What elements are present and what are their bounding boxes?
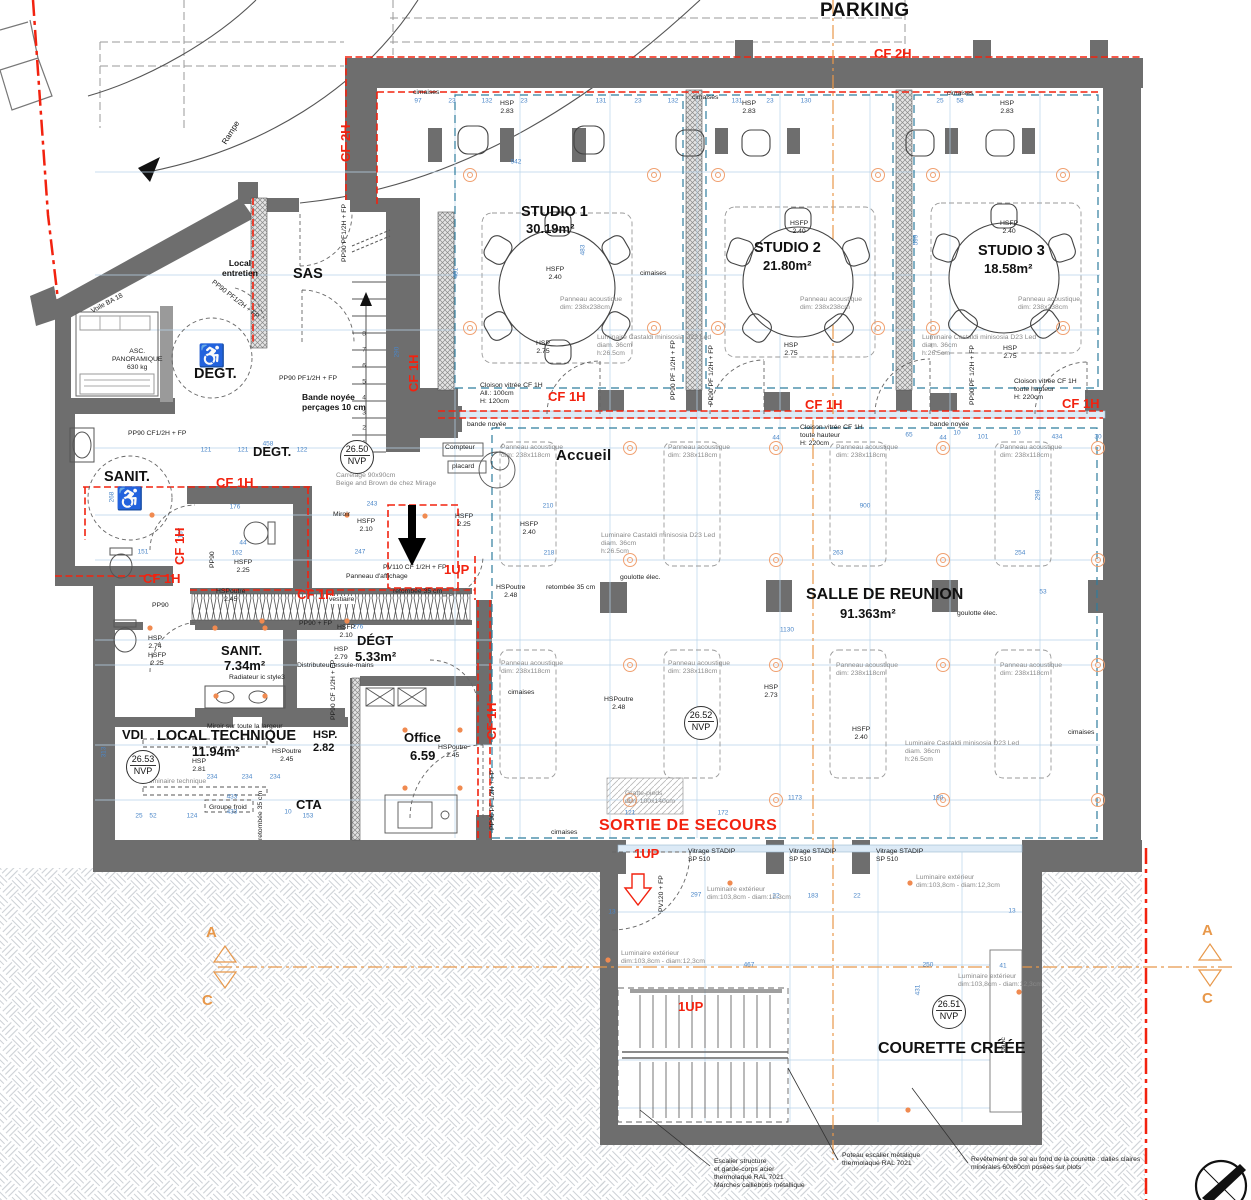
zone-label-parking: PARKING: [820, 0, 910, 22]
height-label: HSP 2.74: [148, 635, 162, 651]
exterior-light-label: Luminaire extérieur dim:103,8cm - diam:1…: [707, 886, 791, 902]
beam-label: retombée 35 cm: [546, 584, 595, 592]
height-label-hsp282: HSP. 2.82: [313, 729, 337, 755]
dimension-label: 254: [1015, 550, 1026, 557]
beam-label: HSPoutre 2.45: [272, 748, 301, 764]
dimension-label: 467: [744, 962, 755, 969]
acoustic-panel-label: Panneau acoustique dim: 238x238cm: [560, 296, 622, 312]
dimension-label: 210: [543, 503, 554, 510]
level-tag-2651: 26.51NVP: [932, 995, 966, 1029]
room-label-studio3: STUDIO 3: [978, 243, 1045, 260]
neighbor-outline: [0, 20, 52, 110]
height-label: HSP 2.83: [742, 100, 756, 116]
dimension-label: 10: [953, 430, 960, 437]
dimension-label: 234: [242, 774, 253, 781]
dimension-label: 101: [978, 434, 989, 441]
fire-label-cf1h: CF 1H: [548, 389, 586, 404]
door-tag: PP90 PF 1/2H + FP: [489, 770, 497, 830]
dimension-label: 121: [625, 810, 636, 817]
dimension-label: 290: [394, 347, 401, 358]
dimension-label: 483: [580, 245, 587, 256]
dimension-label: 130: [801, 98, 812, 105]
dimension-label: 44: [939, 435, 946, 442]
room-area-salle: 91.363m²: [840, 606, 896, 621]
finish-label-carrelage: Carrelage 90x90cm Beige and Brown de che…: [336, 472, 436, 488]
beam-label: HSPoutre 2.48: [604, 696, 633, 712]
dimension-label: 5: [362, 379, 366, 386]
fire-label-cf1h: CF 1H: [143, 571, 181, 586]
room-label-accueil: Accueil: [556, 447, 611, 465]
dimension-label: 247: [355, 549, 366, 556]
room-label-sanit: SANIT.: [104, 469, 150, 486]
level-tag-2650: 26.50NVP: [340, 440, 374, 474]
dimension-label: 433: [227, 794, 238, 801]
fire-label-cf1h: CF 1H: [805, 397, 843, 412]
dimension-label: 25: [135, 813, 142, 820]
dimension-label: 53: [1039, 589, 1046, 596]
acoustic-panel-label: Panneau acoustique dim: 238x118cm: [836, 662, 898, 678]
dimension-label: 190: [933, 795, 944, 802]
floor-plan: PARKING Rampe Voile BA 18 CF 2H CF 2H ST…: [0, 0, 1251, 1200]
section-marker-a-right: A: [1202, 922, 1213, 940]
dimension-label: 44: [239, 540, 246, 547]
fire-label-cf2h-left: CF 2H: [338, 124, 353, 162]
height-label: HSP 2.79: [334, 646, 348, 662]
note-floor-finish: Revêtement de sol au fond de la courette…: [971, 1156, 1140, 1172]
dimension-label: 121: [201, 447, 212, 454]
fire-label-cf1h: CF 1H: [484, 702, 499, 740]
door-tag: PV120 + FP: [658, 875, 666, 912]
entry-arrow: [398, 505, 426, 566]
beam-label: retombée 35 cm: [257, 791, 265, 840]
dimension-label: 122: [297, 447, 308, 454]
level-tag-2653: 26.53NVP: [126, 750, 160, 784]
dimension-label: 243: [367, 501, 378, 508]
glazing-label: Vitrage STADIP SP 510: [688, 848, 735, 864]
dimension-label: 2: [362, 425, 366, 432]
dimension-label: 431: [915, 985, 922, 996]
level-tag-2652: 26.52NVP: [684, 706, 718, 740]
cimaises-label: cimaises: [947, 90, 973, 98]
dimension-label: 124: [187, 813, 198, 820]
height-label: HSP 2.83: [1000, 100, 1014, 116]
dimension-label: 183: [808, 893, 819, 900]
room-area-studio3: 18.58m²: [984, 261, 1032, 276]
dimension-label: 25: [936, 98, 943, 105]
acoustic-panel-label: Panneau acoustique dim: 238x118cm: [1000, 662, 1062, 678]
room-label-sas: SAS: [293, 266, 323, 283]
wheelchair-icon: ♿: [116, 486, 143, 512]
beam-label: HSPoutre 2.45: [216, 588, 245, 604]
room-area-office: 6.59: [410, 748, 435, 763]
height-label: HSFP 2.40: [852, 726, 870, 742]
dimension-label: 7: [362, 347, 366, 354]
dimension-label: 13: [608, 909, 615, 916]
room-label-cta: CTA: [296, 797, 322, 812]
partition-label: Cloison vitrée CF 1H All.: 100cm H: 120c…: [480, 382, 543, 406]
stair-label-1up: 1UP: [678, 999, 703, 1014]
dimension-label: 234: [270, 774, 281, 781]
dimension-label: 313: [101, 747, 108, 758]
note-stair-post: Poteau escalier métalique thermolaqué RA…: [842, 1152, 920, 1168]
door-tag: PP90 PF 1/2H + FP: [708, 345, 716, 405]
room-label-sanit2: SANIT.: [221, 643, 262, 658]
dimension-label: 23: [766, 98, 773, 105]
ramp-curves: [88, 0, 700, 203]
door-tag: PP90: [209, 551, 217, 568]
door-tag: PP90 CF1/2H + FP: [128, 430, 186, 438]
room-area-studio2: 21.80m²: [763, 258, 811, 273]
beam-label: HSPoutre 2.48: [496, 584, 525, 600]
dimension-label: 30: [1094, 434, 1101, 441]
vestiaire-label: vestiaire: [328, 596, 355, 604]
height-label: HSP 2.75: [784, 342, 798, 358]
note-bande-noyee: bande noyée: [930, 421, 969, 429]
door-tag: PP90 + FP: [299, 620, 332, 628]
exit-arrow-icon: [625, 874, 651, 905]
dimension-label: 298: [1035, 490, 1042, 501]
section-marker-c-right: C: [1202, 990, 1213, 1008]
height-label: HSP 2.83: [500, 100, 514, 116]
exterior-light-label: Luminaire extérieur dim:103,8cm - diam:1…: [916, 874, 1000, 890]
door-tag: PP90 PF 1/2H + FP: [670, 340, 678, 400]
dimension-label: 434: [1052, 434, 1063, 441]
acoustic-panel-label: Panneau acoustique dim: 238x118cm: [1000, 444, 1062, 460]
room-label-salle: SALLE DE REUNION: [806, 586, 963, 605]
dimension-label: 97: [414, 98, 421, 105]
dimension-label: 297: [691, 892, 702, 899]
mirror-label: Miroir: [333, 511, 350, 519]
floor-plan-graphics: [0, 0, 1251, 1200]
dimension-label: 132: [668, 98, 679, 105]
height-label: HSP 2.75: [536, 340, 550, 356]
dimension-label: 151: [138, 549, 149, 556]
height-label: HSFP 2.25: [455, 513, 473, 529]
height-label: HSFP 2.40: [546, 266, 564, 282]
dimension-label: 8: [362, 331, 366, 338]
fire-label-cf1h: CF 1H: [1062, 396, 1100, 411]
dimension-label: 6: [362, 363, 366, 370]
acoustic-panel-label: Panneau acoustique dim: 238x118cm: [836, 444, 898, 460]
dimension-label: 10: [284, 809, 291, 816]
exterior-light-label: Luminaire extérieur dim:103,8cm - diam:1…: [958, 973, 1042, 989]
dimension-label: 153: [303, 813, 314, 820]
acoustic-panel-label: Panneau acoustique dim: 238x118cm: [501, 660, 563, 676]
note-stair-structure: Escalier structure et garde-corps acier …: [714, 1158, 805, 1190]
luminaire-label: Luminaire Castaldi minisosia D23 Led dia…: [597, 334, 711, 358]
dimension-label: 22: [853, 893, 860, 900]
ramp-direction-arrow: [138, 157, 160, 182]
door-tag: PP90: [152, 602, 169, 610]
fire-label-cf1h: CF 1H: [216, 475, 254, 490]
glazing-label: Vitrage STADIP SP 510: [876, 848, 923, 864]
dimension-label: 58: [956, 98, 963, 105]
acoustic-panel-label: Panneau acoustique dim: 238x238cm: [800, 296, 862, 312]
luminaire-label: Luminaire Castaldi minisosia D23 Led dia…: [922, 334, 1036, 358]
dimension-label: 44: [772, 435, 779, 442]
cable-tray-label: goulotte élec.: [957, 610, 997, 618]
note-bande-noyee: Bande noyée perçages 10 cm: [302, 392, 366, 412]
door-tag: PP90 PF1/2H + FP: [279, 375, 337, 383]
room-label-degt5: DÉGT: [357, 633, 393, 648]
height-label: HSFP 2.25: [234, 559, 252, 575]
cimaises-label: cimaises: [692, 94, 718, 102]
cimaises-label: cimaises: [508, 689, 534, 697]
dimension-label: 121: [238, 447, 249, 454]
dimension-label: 250: [923, 962, 934, 969]
dimension-label: 23: [520, 98, 527, 105]
mat-label: Gratte-pieds dim: 100x140cm: [625, 790, 675, 806]
room-label-office: Office: [404, 730, 441, 745]
room-label-vdi: VDI: [122, 727, 144, 742]
dimension-label: 65: [905, 432, 912, 439]
room-label-studio1: STUDIO 1: [521, 204, 588, 221]
note-bande-noyee: bande noyée: [467, 421, 506, 429]
cable-tray-label: goulotte élec.: [620, 574, 660, 582]
dimension-label: 599: [913, 235, 920, 246]
height-label: HSFP 2.40: [520, 521, 538, 537]
fire-label-cf1h: CF 1H: [172, 527, 187, 565]
dimension-label: 131: [732, 98, 743, 105]
acoustic-panel-label: Panneau acoustique dim: 238x118cm: [668, 660, 730, 676]
section-marker-c-left: C: [202, 992, 213, 1010]
height-label: HSP 2.73: [764, 684, 778, 700]
meter-label: Compteur: [445, 444, 475, 452]
dimension-label: 234: [207, 774, 218, 781]
luminaire-label: Luminaire Castaldi minisosia D23 Led dia…: [905, 740, 1019, 764]
chiller-label: Groupe froid: [209, 804, 247, 812]
dimension-label: 41: [999, 963, 1006, 970]
dimension-label: 52: [149, 813, 156, 820]
height-label: HSFP 2.10: [337, 624, 355, 640]
elevator-label: ASC. PANORAMIQUE 630 kg: [112, 348, 162, 372]
dimension-label: 942: [511, 159, 522, 166]
height-label: HSFP 2.25: [148, 652, 166, 668]
acoustic-panel-label: Panneau acoustique dim: 238x238cm: [1018, 296, 1080, 312]
dispenser-label: Distributeur essuie-mains: [297, 662, 374, 670]
dimension-label: 481: [453, 268, 460, 279]
room-area-sanit2: 7.34m²: [224, 658, 265, 673]
door-tag: PP90 PF 1/2H + FP: [969, 345, 977, 405]
dimension-label: 13: [1008, 908, 1015, 915]
dimension-label: 900: [860, 503, 871, 510]
door-tag: PP90 PF1/2H + FP: [341, 204, 349, 262]
upper-stairs: [352, 230, 390, 452]
dimension-label: 176: [230, 504, 241, 511]
glazing-label: Vitrage STADIP SP 510: [789, 848, 836, 864]
exterior-paving-hatch: [0, 868, 1145, 1200]
exit-label: SORTIE DE SECOURS: [599, 817, 777, 836]
section-marker-a-left: A: [206, 924, 217, 942]
north-arrow-icon: [1196, 1161, 1246, 1200]
acoustic-panel-label: Panneau acoustique dim: 238x118cm: [668, 444, 730, 460]
dimension-label: 10: [1013, 430, 1020, 437]
dimension-label: 132: [482, 98, 493, 105]
dimension-label: 1173: [788, 795, 802, 802]
dimension-label: 218: [544, 550, 555, 557]
room-label-degt2: DEGT.: [253, 444, 291, 459]
fire-label-cf1h: CF 1H: [406, 354, 421, 392]
dimension-label: 131: [596, 98, 607, 105]
room-label-local-entretien: Local entretien: [222, 258, 258, 278]
beam-label: HSPoutre 2.45: [438, 744, 467, 760]
radiator-label: Radiateur ic style3: [229, 674, 285, 682]
cimaises-label: cimaises: [640, 270, 666, 278]
bench-label: banc: [1000, 1037, 1008, 1052]
room-label-local-technique: LOCAL TECHNIQUE: [157, 728, 296, 745]
stair-label-1up: 1UP: [634, 846, 659, 861]
acoustic-panel-label: Panneau acoustique dim: 238x118cm: [501, 444, 563, 460]
closet-label: placard: [452, 463, 474, 471]
room-area-studio1: 30.19m²: [526, 221, 574, 236]
door-tag: PV110 CF 1/2H + FP: [383, 564, 447, 572]
cimaises-label: cimaises: [413, 89, 439, 97]
beam-label: retombée 35 cm: [393, 588, 442, 596]
cimaises-label: cimaises: [1068, 729, 1094, 737]
height-label: HSFP 2.40: [790, 220, 808, 236]
luminaire-label: Luminaire Castaldi minisosia D23 Led dia…: [601, 532, 715, 556]
height-label: HSP 2.81: [192, 758, 206, 774]
dimension-label: 23: [448, 98, 455, 105]
wheelchair-icon: ♿: [198, 343, 225, 369]
fire-label-cf2h: CF 2H: [874, 46, 912, 61]
height-label: HSFP 2.10: [357, 518, 375, 534]
dimension-label: 268: [109, 492, 116, 503]
room-label-studio2: STUDIO 2: [754, 240, 821, 257]
dimension-label: 1130: [780, 627, 794, 634]
display-panel-label: Panneau d'affichage: [346, 573, 408, 581]
dimension-label: 172: [718, 810, 729, 817]
dimension-label: 162: [232, 550, 243, 557]
dimension-label: 23: [634, 98, 641, 105]
exterior-light-label: Luminaire extérieur dim:103,8cm - diam:1…: [621, 950, 705, 966]
height-label: HSFP 2.40: [1000, 220, 1018, 236]
dimension-label: 263: [833, 550, 844, 557]
stair-label-1up: 1UP: [444, 562, 469, 577]
cimaises-label: cimaises: [551, 829, 577, 837]
